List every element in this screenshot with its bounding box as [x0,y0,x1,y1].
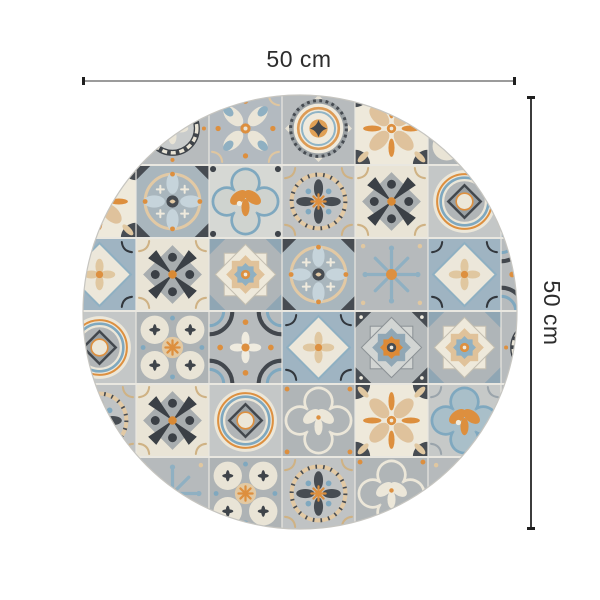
tile-wreath [501,384,574,457]
tile-wreath [501,311,574,384]
tile-pattern [40,69,598,537]
tile-diamond_scroll [428,238,501,311]
tile-diamond_scroll [63,238,136,311]
tile-star8_orange [355,311,428,384]
tile-laurel [282,165,355,238]
product-dimension-diagram: 50 cm 50 cm [0,0,600,600]
tile-petalcross [202,85,288,171]
tile-dagger [136,238,209,311]
tile-quatrefoil_cream [282,384,355,457]
tile-target [209,384,282,457]
round-mat-image [0,0,600,600]
tile-target [63,311,136,384]
tile-snowflake [355,238,428,311]
tile-laurel [282,457,355,530]
tile-star8_cream [209,238,282,311]
tile-ellipse_wheel [136,165,209,238]
tile-dagger [136,384,209,457]
tile-target [428,165,501,238]
tile-snowflake [428,457,501,530]
tile-snowflake [136,457,209,530]
tile-fourcircles [428,92,501,165]
tile-fourcircles [209,457,282,530]
tile-petalcross [56,450,142,536]
tile-petalcross [494,85,580,171]
tile-quatrefoil_fill [428,384,501,457]
tile-diamond_scroll [282,311,355,384]
tile-medallion [282,92,355,165]
tile-star8_cream [428,311,501,384]
tile-dagger [355,165,428,238]
tile-quatrefoil_blue [209,165,282,238]
tile-wreath [136,92,209,165]
tile-ellipse_wheel [282,238,355,311]
tile-diamond_scroll [501,165,574,238]
tile-dagger [501,457,574,530]
tile-fourcircles [136,311,209,384]
